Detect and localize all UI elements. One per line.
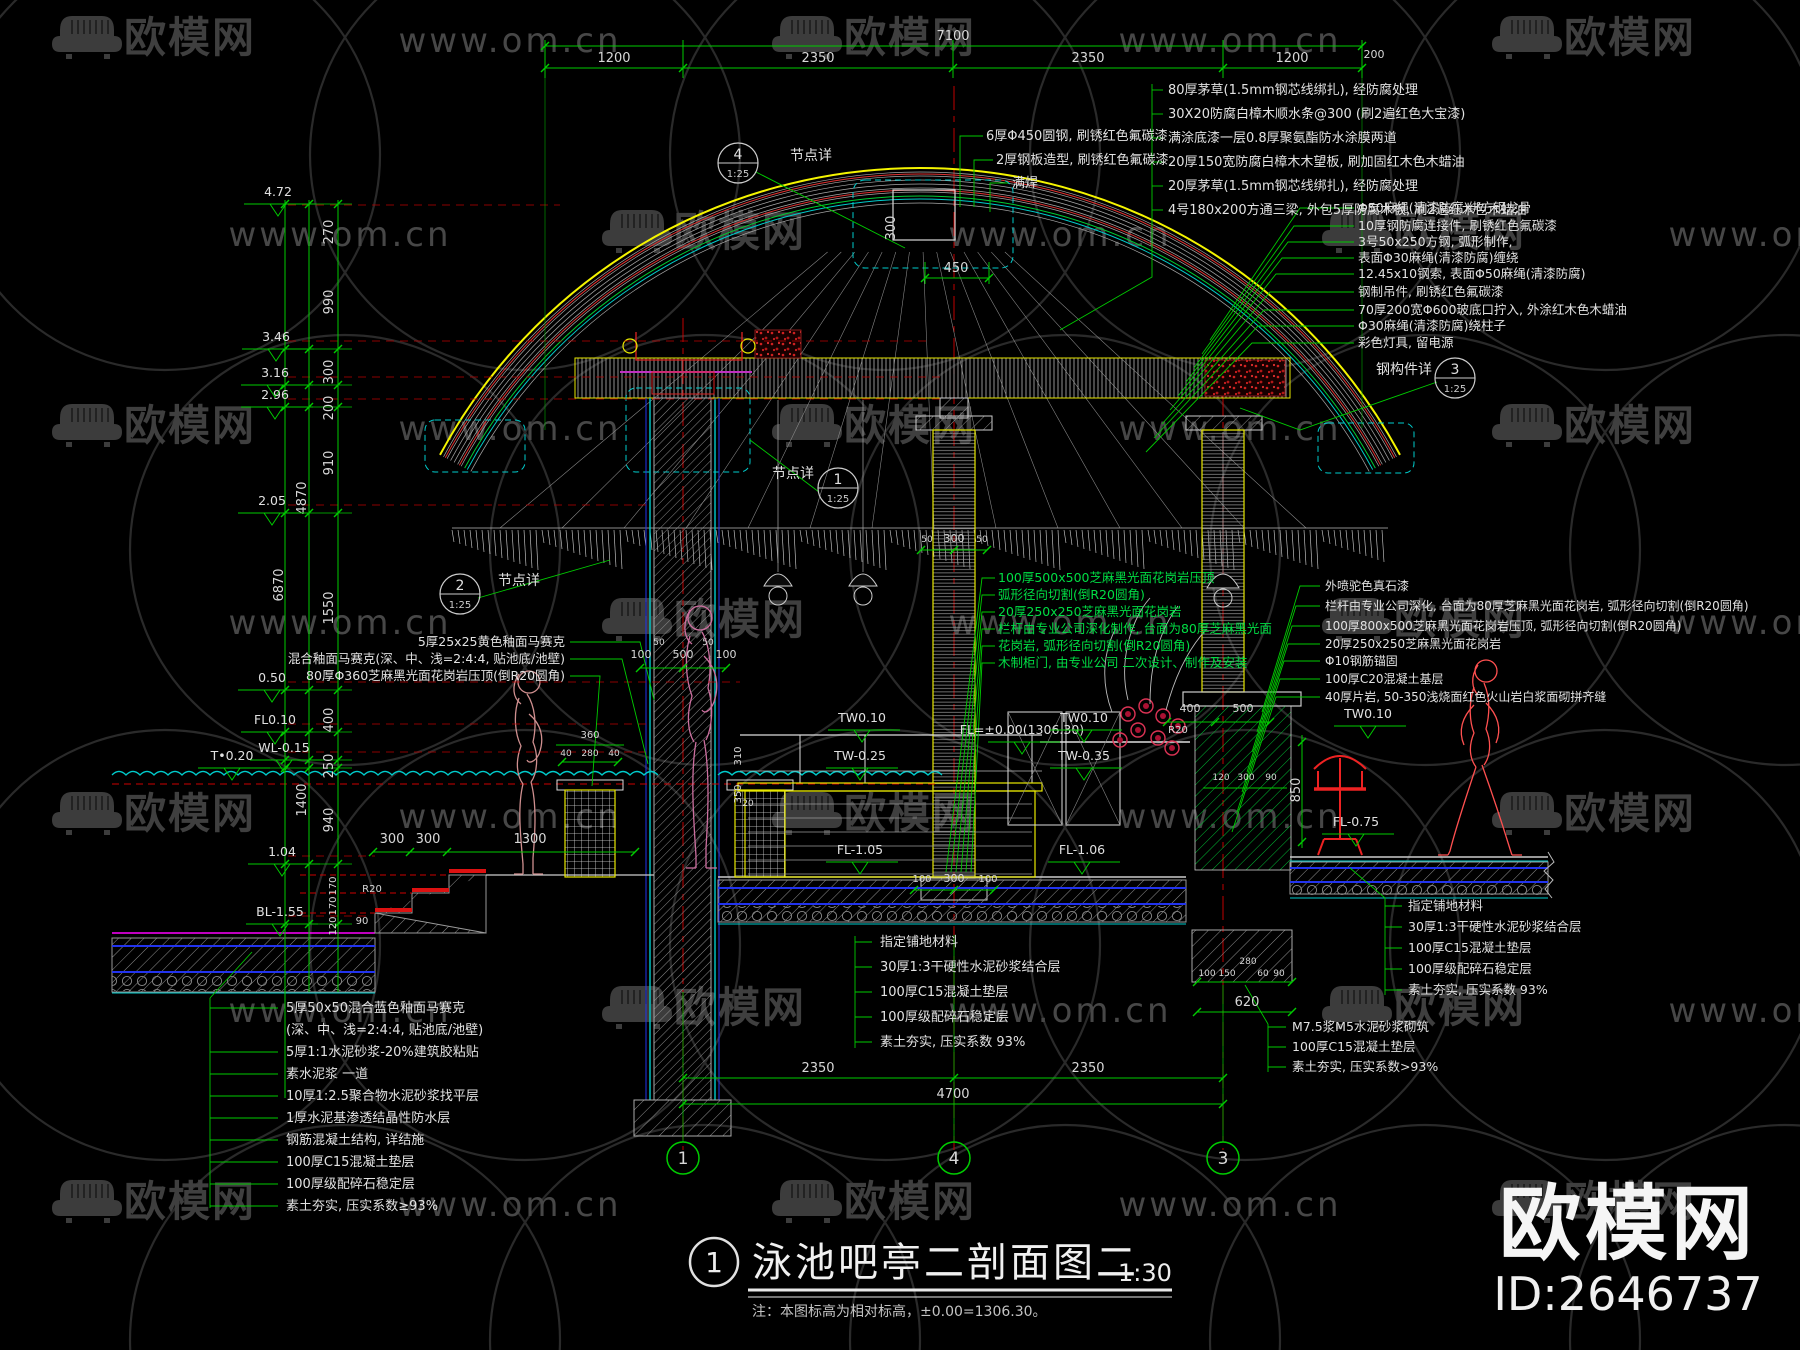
thatch-strand — [1076, 530, 1078, 547]
dim-text: 2350 — [801, 1061, 834, 1076]
thatch-strand — [764, 530, 766, 559]
thatch-strand — [788, 530, 790, 567]
dim-text: 2350 — [1071, 51, 1104, 66]
dim-text: R20 — [362, 884, 382, 895]
watermark-url: www.om.cn — [398, 21, 621, 61]
annotation-text: 素水泥浆 一道 — [286, 1067, 368, 1082]
annotation-text: (深、中、浅=2:4:4, 贴池底/池壁) — [286, 1022, 483, 1038]
thatch-strand — [482, 530, 484, 552]
right-column-cap — [1186, 416, 1262, 430]
thatch-strand — [884, 530, 886, 570]
watermark-brand-text: 欧模网 — [844, 1177, 976, 1226]
watermark-brand: 欧模网 — [52, 789, 256, 838]
center-column-cap — [916, 416, 992, 430]
dim-text: 100 — [716, 648, 737, 661]
thatch-strand — [1298, 530, 1300, 563]
dim-text: 280 — [1239, 957, 1256, 967]
title-note: 注：本图标高为相对标高，±0.00=1306.30。 — [752, 1303, 1047, 1320]
thatch-strand — [1160, 530, 1162, 546]
sofa-icon — [772, 1180, 842, 1223]
dim-text: R20 — [1168, 725, 1188, 736]
annotation-text: 100厚级配碎石稳定层 — [1408, 961, 1532, 976]
detail-marker: 31:25钢构件详 — [1376, 358, 1475, 398]
thatch-strand — [1316, 530, 1318, 569]
thatch-strand — [800, 530, 802, 542]
thatch-strand — [566, 530, 568, 551]
detail-marker: 21:25节点详 — [440, 573, 540, 614]
thatch-strand — [1136, 530, 1138, 567]
red-infill-right — [1205, 360, 1285, 396]
thatch-strand — [554, 530, 556, 547]
thatch-strand — [614, 530, 616, 567]
dim-text: 120 — [1212, 773, 1229, 783]
thatch-strand — [872, 530, 874, 566]
detail-number: 2 — [456, 578, 465, 594]
thatch-strand — [1070, 530, 1072, 545]
thatch-strand — [1304, 530, 1306, 565]
thatch-strand — [746, 530, 748, 553]
thatch-strand — [734, 530, 736, 549]
level-label: 2.96 — [261, 387, 289, 402]
thatch-strand — [1370, 530, 1372, 558]
annotation-text: 栏杆由专业公司深化制作, 台面为80厚芝麻黑光面 — [998, 621, 1272, 636]
dim-text: 450 — [944, 261, 969, 276]
underwater-pedestal — [565, 790, 615, 877]
thatch-strand — [620, 530, 622, 569]
dim-text: 400 — [322, 708, 337, 733]
sofa-icon — [52, 404, 122, 447]
thatch-strand — [878, 530, 880, 568]
dim-text: 300 — [944, 872, 965, 885]
thatch-strand — [818, 530, 820, 548]
thatch-strand — [530, 530, 532, 568]
level-label: 3.16 — [261, 365, 289, 380]
thatch-strand — [842, 530, 844, 556]
dim-text: 90 — [356, 916, 369, 927]
thatch-strand — [1118, 530, 1120, 561]
thatch-strand — [1376, 530, 1378, 560]
cad-screenshot: 欧模网www.om.cn欧模网www.om.cn欧模网www.om.cn欧模网w… — [0, 0, 1800, 1350]
annotation-text: 钢筋混凝土结构, 详结施 — [286, 1132, 424, 1148]
sofa-icon — [1492, 792, 1562, 835]
annotation-text: 80厚Φ360芝麻黑光面花岗岩压顶(倒R20圆角) — [306, 668, 565, 683]
dim-text: 50 — [976, 535, 988, 545]
thatch-strand — [506, 530, 508, 560]
dim-text: 310 — [733, 746, 744, 765]
thatch-strand — [740, 530, 742, 551]
dim-text: 7100 — [936, 29, 969, 44]
water-surface — [718, 772, 942, 776]
thatch-strand — [908, 530, 910, 549]
flower-center — [1155, 735, 1161, 741]
dim-text: 90 — [1265, 773, 1277, 783]
thatch-strand — [518, 530, 520, 564]
dim-text: 4700 — [936, 1087, 969, 1102]
dim-text: 2350 — [801, 51, 834, 66]
watermark-url-text: www.om.cn — [228, 215, 451, 255]
thatch-strand — [1124, 530, 1126, 563]
annotation-text: 100厚级配碎石稳定层 — [286, 1176, 415, 1192]
watermark-brand: 欧模网 — [1492, 789, 1696, 838]
thatch-strand — [548, 530, 550, 545]
main-beam — [575, 358, 1290, 398]
thatch-strand — [1352, 530, 1354, 552]
level-triangle — [1014, 742, 1030, 754]
thatch-strand — [500, 530, 502, 558]
dim-text: 100 — [1198, 969, 1215, 979]
thatch-strand — [830, 530, 832, 552]
dim-text: 170 — [328, 876, 339, 895]
dim-text: 120 — [328, 916, 339, 935]
dim-text: 200 — [322, 396, 337, 421]
level-label: TW-0.35 — [1057, 748, 1110, 763]
thatch-strand — [1100, 530, 1102, 555]
thatch-strand — [902, 530, 904, 547]
dim-text: 360 — [580, 730, 599, 741]
dim-text: 90 — [1273, 969, 1285, 979]
level-triangle — [268, 349, 284, 361]
dim-text: 990 — [322, 290, 337, 315]
flower-center — [1169, 745, 1175, 751]
thatch-strand — [1340, 530, 1342, 548]
annotation-text: 满涂底漆一层0.8厚聚氨酯防水涂膜两道 — [1168, 130, 1397, 146]
thatch-strand — [890, 530, 892, 543]
dim-text: 620 — [1235, 995, 1260, 1010]
level-label: FL0.10 — [254, 712, 296, 727]
brand-id: ID:2646737 — [1493, 1267, 1762, 1321]
annotation-text: 100厚C20混凝土基层 — [1325, 671, 1444, 686]
thatch-strand — [914, 530, 916, 551]
pool-pavilion-section-drawing: 欧模网www.om.cn欧模网www.om.cn欧模网www.om.cn欧模网w… — [0, 0, 1800, 1350]
watermark-brand: 欧模网 — [1492, 401, 1696, 450]
gravel-layer — [112, 974, 375, 991]
thatch-strand — [470, 530, 472, 548]
dim-text: 6870 — [272, 568, 287, 601]
annotation-text: 100厚C15混凝土垫层 — [286, 1154, 414, 1170]
level-label: BL-1.55 — [256, 904, 304, 919]
thatch-strand — [1196, 530, 1198, 558]
thatch-strand — [1052, 530, 1054, 568]
thatch-strand — [1142, 530, 1144, 569]
dim-text: 100 — [631, 648, 652, 661]
thatch-strand — [896, 530, 898, 545]
watermark-url: www.om.cn — [228, 215, 451, 255]
thatch-strand — [1346, 530, 1348, 550]
annotation-text: 3号50x250方钢, 弧形制作, — [1358, 234, 1513, 249]
thatch-strand — [1130, 530, 1132, 565]
annotation-text: 10厚钢防腐连接件, 刷锈红色氟碳漆 — [1358, 218, 1557, 233]
watermark-brand-text: 欧模网 — [124, 13, 256, 62]
annotation-text: 30厚1:3干硬性水泥砂浆结合层 — [880, 960, 1060, 975]
dim-text: 50 — [653, 638, 665, 648]
annotation-text: 素土夯实, 压实系数>93% — [1292, 1059, 1438, 1074]
dim-text: 280 — [581, 749, 598, 759]
annotation-text: 6厚Φ450圆钢, 刷锈红色氟碳漆 — [986, 128, 1168, 144]
dim-text: 300 — [1237, 773, 1254, 783]
thatch-strand — [1364, 530, 1366, 556]
level-label: 0.50 — [258, 670, 286, 685]
level-label: 2.05 — [258, 493, 286, 508]
leader — [1194, 242, 1354, 368]
dim-text: 250 — [322, 754, 337, 779]
thatch-strand — [722, 530, 724, 545]
thatch-strand — [1274, 530, 1276, 555]
annotation-text: Φ10钢筋锚固 — [1325, 653, 1398, 668]
thatch-strand — [1250, 530, 1252, 547]
level-triangle — [852, 862, 868, 874]
annotation-text: 30厚1:3干硬性水泥砂浆结合层 — [1408, 919, 1582, 934]
watermark-brand: 欧模网 — [52, 401, 256, 450]
page-title: 泳池吧亭二剖面图二 — [752, 1240, 1139, 1286]
annotation-text: 彩色灯具, 留电源 — [1358, 335, 1454, 350]
detail-number: 1 — [834, 472, 843, 488]
annotation-text: 12.45x10钢索, 表面Φ50麻绳(清漆防腐) — [1358, 266, 1586, 281]
annotation-text: 5厚1:1水泥砂浆-20%建筑胶粘贴 — [286, 1044, 479, 1060]
thatch-strand — [1190, 530, 1192, 556]
thatch-strand — [524, 530, 526, 566]
watermark-brand-text: 欧模网 — [124, 789, 256, 838]
thatch-strand — [626, 530, 628, 542]
watermark-brand: 欧模网 — [52, 13, 256, 62]
detail-label: 钢构件详 — [1376, 362, 1432, 378]
level-label: 1.04 — [268, 844, 296, 859]
dim-text: 60 — [1257, 969, 1269, 979]
thatch-strand — [596, 530, 598, 561]
thatch-strand — [602, 530, 604, 563]
sofa-icon — [52, 792, 122, 835]
sofa-icon — [52, 16, 122, 59]
watermark-brand: 欧模网 — [602, 207, 806, 256]
level-label: 4.72 — [264, 184, 292, 199]
annotation-text: Φ30麻绳(清漆防腐)绕柱子 — [1358, 318, 1506, 333]
level-label: TW0.10 — [1059, 710, 1108, 725]
annotation-text: 20厚250x250芝麻黑光面花岗岩 — [998, 604, 1182, 619]
annotation-text: M7.5浆M5水泥砂浆砌筑 — [1292, 1019, 1429, 1034]
detail-number: 3 — [1451, 362, 1460, 378]
detail-number: 4 — [734, 147, 743, 163]
watermark-brand-text: 欧模网 — [1564, 401, 1696, 450]
thatch-strand — [854, 530, 856, 560]
thatch-strand — [806, 530, 808, 544]
annotation-text: 花岗岩, 弧形径向切割(倒R20圆角) — [998, 638, 1190, 653]
thatch-strand — [1040, 530, 1042, 564]
level-triangle — [1360, 726, 1376, 738]
annotation-text: 5厚50x50混合蓝色釉面马赛克 — [286, 1000, 465, 1016]
dim-text: 300 — [884, 216, 899, 241]
watermark-url-text: www.om.cn — [1118, 1185, 1341, 1225]
thatch-strand — [536, 530, 538, 570]
sofa-icon — [772, 404, 842, 447]
flower-center — [1143, 703, 1149, 709]
annotation-text: Φ50麻绳(清漆防腐)绑方钢龙骨 — [1358, 200, 1531, 215]
thatch-strand — [1106, 530, 1108, 557]
dim-text: 850 — [1289, 778, 1304, 803]
watermark-url: www.om.cn — [1668, 991, 1800, 1031]
site-branding: 欧模网 ID:2646737 — [1493, 1177, 1762, 1321]
annotation-text: 指定铺地材料 — [1408, 898, 1484, 913]
annotation-text: 外喷驼色真石漆 — [1325, 578, 1409, 593]
thatch-strand — [584, 530, 586, 557]
thatch-strand — [1028, 530, 1030, 560]
thatch-strand — [1286, 530, 1288, 559]
thatch-strand — [1154, 530, 1156, 544]
dim-text: 2350 — [1071, 1061, 1104, 1076]
thatch-strand — [812, 530, 814, 546]
level-label: TW0.10 — [1343, 706, 1392, 721]
level-triangle — [1076, 768, 1092, 780]
annotation-text: 弧形径向切割(倒R20圆角) — [998, 587, 1145, 602]
annotation-text: 10厚1:2.5聚合物水泥砂浆找平层 — [286, 1089, 479, 1104]
title-block: 1 泳池吧亭二剖面图二 1:30 注：本图标高为相对标高，±0.00=1306.… — [690, 1238, 1172, 1320]
thatch-strand — [578, 530, 580, 555]
annotation-text: 20厚茅草(1.5mm钢芯线绑扎), 经防腐处理 — [1168, 178, 1418, 194]
watermark-url-text: www.om.cn — [1668, 991, 1800, 1031]
dim-text: 1300 — [513, 832, 546, 847]
thatch-strand — [1334, 530, 1336, 546]
dim-text: 270 — [322, 220, 337, 245]
level-label: FL-1.06 — [1059, 842, 1105, 857]
dim-text: 4870 — [295, 481, 310, 514]
thatch-strand — [1358, 530, 1360, 554]
level-label: 3.46 — [262, 329, 290, 344]
thatch-strand — [1094, 530, 1096, 553]
detail-scale: 1:25 — [727, 169, 749, 180]
thatch-strand — [512, 530, 514, 562]
watermark-url-text: www.om.cn — [398, 21, 621, 61]
thatch-strand — [1328, 530, 1330, 544]
thatch-strand — [1322, 530, 1324, 542]
level-label: TW-0.25 — [833, 748, 886, 763]
watermark-url: www.om.cn — [948, 215, 1171, 255]
thatch-strand — [1112, 530, 1114, 559]
thatch-strand — [464, 530, 466, 546]
watermark-url: www.om.cn — [398, 409, 621, 449]
dim-text: 1550 — [322, 591, 337, 624]
detail-label: 节点详 — [772, 466, 814, 482]
annotation-text: 100厚500x500芝麻黑光面花岗岩压顶 — [998, 570, 1215, 585]
dim-text: 300 — [944, 532, 965, 545]
thatch-strand — [1010, 530, 1012, 554]
thatch-strand — [1058, 530, 1060, 570]
title-number: 1 — [705, 1246, 723, 1279]
annotation-text: 2厚钢板造型, 刷锈红色氟碳漆 — [996, 152, 1169, 168]
dim-text: 1200 — [1275, 51, 1308, 66]
dim-text: 170 — [328, 896, 339, 915]
annotation-text: 钢制吊件, 刷锈红色氟碳漆 — [1358, 284, 1503, 299]
annotation-text: 20厚250x250芝麻黑光面花岗岩 — [1325, 636, 1501, 651]
thatch-strand — [1016, 530, 1018, 556]
thatch-strand — [452, 530, 454, 542]
watermark-brand: 欧模网 — [1492, 13, 1696, 62]
thatch-strand — [992, 530, 994, 548]
level-label: WL-0.15 — [258, 740, 309, 755]
level-label: TW0.10 — [837, 710, 886, 725]
thatch-strand — [572, 530, 574, 553]
dim-text: 40 — [608, 749, 620, 759]
thatch-strand — [1004, 530, 1006, 552]
thatch-strand — [1046, 530, 1048, 566]
dim-text: 1400 — [295, 783, 310, 816]
thatch-strand — [1382, 530, 1384, 562]
annotation-text: 素土夯实, 压实系数≥93% — [286, 1199, 438, 1214]
thatch-strand — [794, 530, 796, 569]
thatch-strand — [1310, 530, 1312, 567]
watermark-brand: 欧模网 — [772, 1177, 976, 1226]
thatch-strand — [998, 530, 1000, 550]
level-triangle — [264, 690, 280, 702]
apex-node-block — [893, 190, 955, 240]
thatch-strand — [1262, 530, 1264, 551]
annotation-text: 100厚800x500芝麻黑光面花岗岩压顶, 弧形径向切割(倒R20圆角) — [1325, 618, 1681, 633]
flower-center — [1117, 737, 1123, 743]
thatch-strand — [1082, 530, 1084, 549]
detail-scale: 1:25 — [1444, 384, 1466, 395]
dim-text: 300 — [380, 832, 405, 847]
thatch-strand — [1178, 530, 1180, 552]
dim-text: 940 — [322, 808, 337, 833]
thatch-strand — [752, 530, 754, 555]
annotation-text: 素土夯实, 压实系数 93% — [1408, 982, 1548, 997]
thatch-strand — [1166, 530, 1168, 548]
dim-text: 1200 — [597, 51, 630, 66]
annotation-text: 100厚C15混凝土垫层 — [880, 984, 1008, 1000]
thatch-strand — [824, 530, 826, 550]
thatch-strand — [860, 530, 862, 562]
dim-text: 300 — [416, 832, 441, 847]
annotation-text: 100厚C15混凝土垫层 — [1292, 1039, 1416, 1054]
thatch-strand — [1088, 530, 1090, 551]
title-scale: 1:30 — [1118, 1259, 1172, 1287]
detail-marker: 11:25节点详 — [772, 466, 858, 508]
annotation-text: 40厚片岩, 50-350浅烧面红色火山岩白浆面砌拼齐缝 — [1325, 689, 1606, 704]
watermark-url: www.om.cn — [1668, 215, 1800, 255]
thatch-strand — [770, 530, 772, 561]
annotation-text: 满焊 — [1012, 175, 1038, 191]
annotation-text: 100厚C15混凝土垫层 — [1408, 940, 1532, 955]
sofa-icon — [52, 1180, 122, 1223]
detail-label: 节点详 — [790, 148, 832, 164]
annotation-text: 20厚150宽防腐白樟木木望板, 刷加固红木色木蜡油 — [1168, 154, 1465, 170]
annotation-text: 100厚级配碎石稳定层 — [880, 1009, 1009, 1025]
brand-logo: 欧模网 — [1499, 1177, 1757, 1272]
watermark-url-text: www.om.cn — [948, 215, 1171, 255]
watermark-url: www.om.cn — [1118, 1185, 1341, 1225]
detail-label: 节点详 — [498, 573, 540, 589]
dim-text: 20 — [742, 799, 754, 809]
thatch-strand — [1256, 530, 1258, 549]
level-label: FL-1.05 — [837, 842, 883, 857]
thatch-strand — [1268, 530, 1270, 553]
thatch-strand — [632, 530, 634, 544]
grid-bubble-label: 4 — [949, 1149, 960, 1169]
thatch-strand — [1292, 530, 1294, 561]
dim-text: 50 — [921, 535, 933, 545]
sofa-icon — [1492, 16, 1562, 59]
flower-center — [1135, 727, 1141, 733]
thatch-strand — [782, 530, 784, 565]
thatch-strand — [758, 530, 760, 557]
level-label: FL-0.75 — [1333, 814, 1379, 829]
thatch-strand — [542, 530, 544, 543]
annotation-text: 5厚25x25黄色釉面马赛克 — [418, 634, 565, 649]
dim-text: 910 — [322, 451, 337, 476]
thatch-strand — [458, 530, 460, 544]
annotation-text: 70厚200宽Φ600玻底口拧入, 外涂红木色木蜡油 — [1358, 302, 1627, 317]
center-column-neck — [940, 398, 968, 418]
thatch-strand — [1064, 530, 1066, 543]
watermark-brand-text: 欧模网 — [1564, 789, 1696, 838]
leader — [990, 183, 1008, 212]
